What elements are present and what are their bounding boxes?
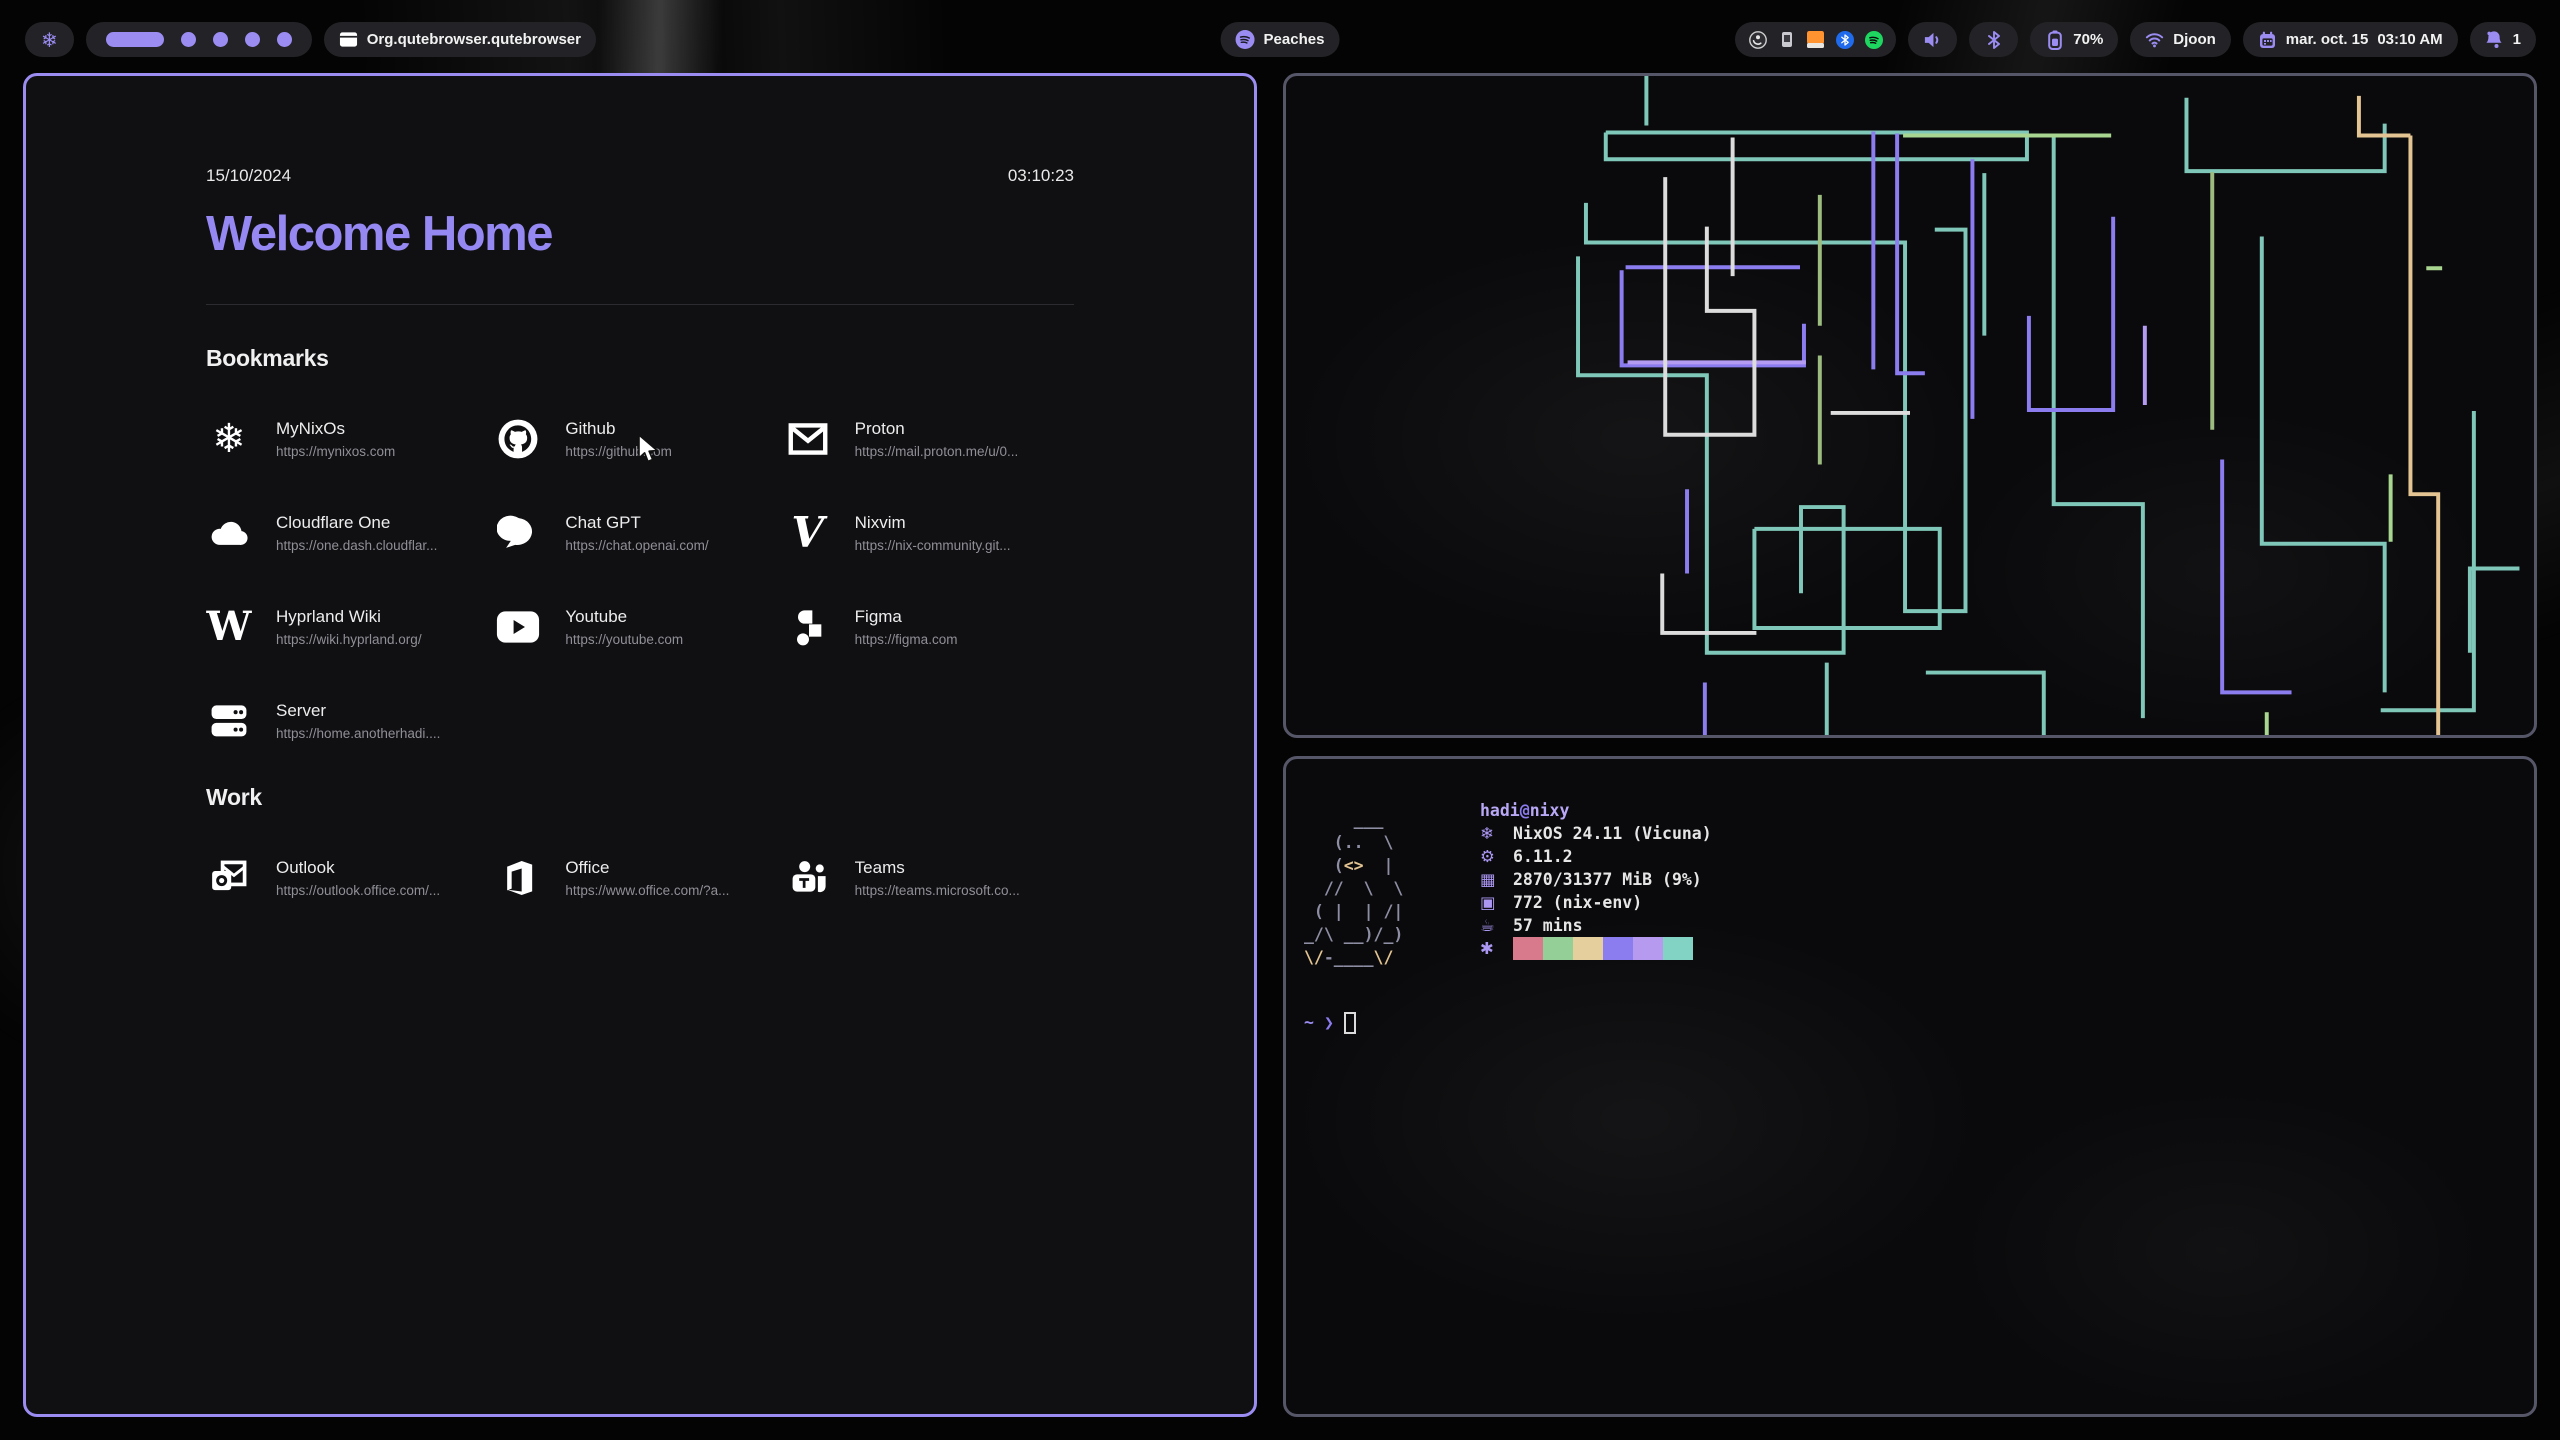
fetch-row-snowflake: ❄NixOS 24.11 (Vicuna) bbox=[1480, 822, 1712, 845]
startpage-section: Work Outlook https://outlook.office.com/… bbox=[206, 784, 1074, 901]
calendar-icon bbox=[2258, 30, 2277, 49]
media-title: Peaches bbox=[1264, 31, 1325, 48]
media-player-pill[interactable]: Peaches bbox=[1221, 22, 1340, 57]
hostname: nixy bbox=[1530, 801, 1570, 820]
workspace-indicator[interactable] bbox=[213, 32, 228, 47]
bookmark-card-office[interactable]: Office https://www.office.com/?a... bbox=[495, 855, 784, 901]
bookmark-card-github[interactable]: Github https://github.com bbox=[495, 416, 784, 462]
divider bbox=[206, 304, 1074, 305]
server-icon bbox=[206, 698, 252, 744]
prompt-path: ~ bbox=[1304, 1011, 1314, 1034]
palette-swatch-4 bbox=[1603, 937, 1633, 960]
bookmark-name: Nixvim bbox=[855, 513, 1011, 533]
uptime-icon: ☕ bbox=[1480, 914, 1513, 937]
bookmark-url: https://www.office.com/?a... bbox=[565, 883, 729, 898]
bookmark-name: Github bbox=[565, 419, 672, 439]
startpage-section: Bookmarks ❄ MyNixOs https://mynixos.com … bbox=[206, 345, 1074, 744]
youtube-icon bbox=[495, 604, 541, 650]
workspace-indicator[interactable] bbox=[181, 32, 196, 47]
notifications-pill[interactable]: 1 bbox=[2470, 22, 2536, 57]
kernel-icon: ⚙ bbox=[1480, 845, 1513, 868]
bookmark-name: Figma bbox=[855, 607, 958, 627]
bookmark-card-outlook[interactable]: Outlook https://outlook.office.com/... bbox=[206, 855, 495, 901]
bookmarks-grid: Outlook https://outlook.office.com/... O… bbox=[206, 855, 1074, 901]
bookmark-url: https://mail.proton.me/u/0... bbox=[855, 444, 1019, 459]
bookmark-url: https://teams.microsoft.co... bbox=[855, 883, 1020, 898]
wifi-icon bbox=[2145, 30, 2164, 49]
bookmark-card-chat-gpt[interactable]: Chat GPT https://chat.openai.com/ bbox=[495, 510, 784, 556]
bookmark-card-teams[interactable]: Teams https://teams.microsoft.co... bbox=[785, 855, 1074, 901]
startpage-clock: 03:10:23 bbox=[1008, 166, 1074, 186]
section-heading-bookmarks: Bookmarks bbox=[206, 345, 1074, 372]
bookmark-card-server[interactable]: Server https://home.anotherhadi.... bbox=[206, 698, 495, 744]
bookmark-url: https://wiki.hyprland.org/ bbox=[276, 632, 422, 647]
workspace-indicator[interactable] bbox=[277, 32, 292, 47]
workspace-indicator-active[interactable] bbox=[106, 32, 164, 47]
clock-date: mar. oct. 15 bbox=[2286, 31, 2369, 48]
prompt-chevron: ❯ bbox=[1324, 1011, 1334, 1034]
workspace-indicator[interactable] bbox=[245, 32, 260, 47]
packages-icon: ▣ bbox=[1480, 891, 1513, 914]
palette-icon: ✱ bbox=[1480, 937, 1513, 960]
bookmark-url: https://chat.openai.com/ bbox=[565, 538, 708, 553]
fetch-terminal-window[interactable]: ___ (.. \ (<> | // \ \ ( | | /| _/\ __)/… bbox=[1283, 756, 2537, 1417]
volume-icon bbox=[1923, 30, 1942, 49]
bookmark-name: MyNixOs bbox=[276, 419, 395, 439]
tray-icon-widget[interactable] bbox=[1777, 30, 1796, 49]
active-window-pill[interactable]: Org.qutebrowser.qutebrowser bbox=[324, 22, 596, 57]
username: hadi bbox=[1480, 801, 1520, 820]
status-bar-right: 70% Djoon mar. oct. 15 03:10 AM 1 bbox=[1735, 22, 2536, 57]
vim-icon: V bbox=[785, 510, 831, 556]
shell-prompt[interactable]: ~ ❯ bbox=[1304, 1011, 1356, 1034]
startpage-date: 15/10/2024 bbox=[206, 166, 291, 186]
bookmark-card-hyprland-wiki[interactable]: W Hyprland Wiki https://wiki.hyprland.or… bbox=[206, 604, 495, 650]
workspaces-widget bbox=[86, 22, 312, 57]
palette-swatch-3 bbox=[1573, 937, 1603, 960]
section-heading-work: Work bbox=[206, 784, 1074, 811]
bookmark-card-youtube[interactable]: Youtube https://youtube.com bbox=[495, 604, 784, 650]
fetch-row-uptime: ☕57 mins bbox=[1480, 914, 1712, 937]
user-host: hadi@nixy bbox=[1480, 799, 1712, 822]
clock-time: 03:10 AM bbox=[2377, 31, 2442, 48]
bluetooth-icon bbox=[1984, 30, 2003, 49]
tray-icon-spotify[interactable] bbox=[1864, 30, 1883, 49]
nixos-icon: ❄ bbox=[206, 416, 252, 462]
bookmark-url: https://figma.com bbox=[855, 632, 958, 647]
bookmark-name: Hyprland Wiki bbox=[276, 607, 422, 627]
bookmark-name: Youtube bbox=[565, 607, 683, 627]
bookmarks-grid: ❄ MyNixOs https://mynixos.com Github htt… bbox=[206, 416, 1074, 744]
system-tray bbox=[1735, 22, 1896, 57]
tray-icon-bluetooth[interactable] bbox=[1835, 30, 1854, 49]
outlook-icon bbox=[206, 855, 252, 901]
bookmark-card-nixvim[interactable]: V Nixvim https://nix-community.git... bbox=[785, 510, 1074, 556]
cloud-icon bbox=[206, 510, 252, 556]
status-bar: ❄ Org.qutebrowser.qutebrowser Peaches bbox=[0, 0, 2560, 56]
window-icon bbox=[339, 30, 358, 49]
battery-percent: 70% bbox=[2073, 31, 2103, 48]
volume-pill[interactable] bbox=[1908, 22, 1957, 57]
pipes-screensaver-art bbox=[1286, 76, 2534, 735]
wikipedia-icon: W bbox=[206, 604, 252, 650]
bookmark-name: Server bbox=[276, 701, 440, 721]
network-pill[interactable]: Djoon bbox=[2130, 22, 2231, 57]
bluetooth-pill[interactable] bbox=[1969, 22, 2018, 57]
palette-swatch-5 bbox=[1633, 937, 1663, 960]
page-title: Welcome Home bbox=[206, 206, 1074, 262]
bookmark-url: https://youtube.com bbox=[565, 632, 683, 647]
snowflake-icon: ❄ bbox=[1480, 822, 1513, 845]
fetch-row-packages: ▣772 (nix-env) bbox=[1480, 891, 1712, 914]
bookmark-card-proton[interactable]: Proton https://mail.proton.me/u/0... bbox=[785, 416, 1074, 462]
bookmark-url: https://one.dash.cloudflar... bbox=[276, 538, 437, 553]
bookmark-url: https://outlook.office.com/... bbox=[276, 883, 440, 898]
bookmark-name: Cloudflare One bbox=[276, 513, 437, 533]
battery-icon bbox=[2045, 30, 2064, 49]
palette-swatch-6 bbox=[1663, 937, 1693, 960]
bookmark-url: https://github.com bbox=[565, 444, 672, 459]
bookmark-card-figma[interactable]: Figma https://figma.com bbox=[785, 604, 1074, 650]
github-icon bbox=[495, 416, 541, 462]
status-bar-left: ❄ Org.qutebrowser.qutebrowser bbox=[25, 22, 596, 57]
notification-count: 1 bbox=[2513, 31, 2521, 48]
bookmark-name: Outlook bbox=[276, 858, 440, 878]
memory-icon: ▦ bbox=[1480, 868, 1513, 891]
bell-icon bbox=[2485, 30, 2504, 49]
mail-icon bbox=[785, 416, 831, 462]
chat-icon bbox=[495, 510, 541, 556]
bookmark-url: https://home.anotherhadi.... bbox=[276, 726, 440, 741]
pipes-terminal-window[interactable] bbox=[1283, 73, 2537, 738]
fetch-row-memory: ▦2870/31377 MiB (9%) bbox=[1480, 868, 1712, 891]
bookmark-name: Proton bbox=[855, 419, 1019, 439]
battery-pill[interactable]: 70% bbox=[2030, 22, 2118, 57]
clock-pill[interactable]: mar. oct. 15 03:10 AM bbox=[2243, 22, 2458, 57]
bookmark-card-mynixos[interactable]: ❄ MyNixOs https://mynixos.com bbox=[206, 416, 495, 462]
fetch-row-kernel: ⚙6.11.2 bbox=[1480, 845, 1712, 868]
bookmark-card-cloudflare-one[interactable]: Cloudflare One https://one.dash.cloudfla… bbox=[206, 510, 495, 556]
palette-swatch-2 bbox=[1543, 937, 1573, 960]
nix-menu-button[interactable]: ❄ bbox=[25, 22, 74, 57]
network-name: Djoon bbox=[2173, 31, 2216, 48]
spotify-media-icon bbox=[1236, 30, 1255, 49]
terminal-cursor bbox=[1344, 1012, 1356, 1034]
tray-icon-obs[interactable] bbox=[1748, 30, 1767, 49]
bookmark-name: Office bbox=[565, 858, 729, 878]
fetch-row-colors: ✱ bbox=[1480, 937, 1712, 960]
palette-swatch-1 bbox=[1513, 937, 1543, 960]
bookmark-name: Teams bbox=[855, 858, 1020, 878]
startpage-header: 15/10/2024 03:10:23 bbox=[206, 166, 1074, 186]
figma-icon bbox=[785, 604, 831, 650]
bookmark-url: https://mynixos.com bbox=[276, 444, 395, 459]
bookmark-name: Chat GPT bbox=[565, 513, 708, 533]
tux-ascii-art: ___ (.. \ (<> | // \ \ ( | | /| _/\ __)/… bbox=[1304, 808, 1403, 969]
bookmark-url: https://nix-community.git... bbox=[855, 538, 1011, 553]
startpage-window: 15/10/2024 03:10:23 Welcome Home Bookmar… bbox=[23, 73, 1257, 1417]
nixos-logo-icon: ❄ bbox=[41, 30, 58, 50]
active-window-title: Org.qutebrowser.qutebrowser bbox=[367, 31, 581, 48]
teams-icon bbox=[785, 855, 831, 901]
office-icon bbox=[495, 855, 541, 901]
tray-icon-orange-app[interactable] bbox=[1806, 30, 1825, 49]
